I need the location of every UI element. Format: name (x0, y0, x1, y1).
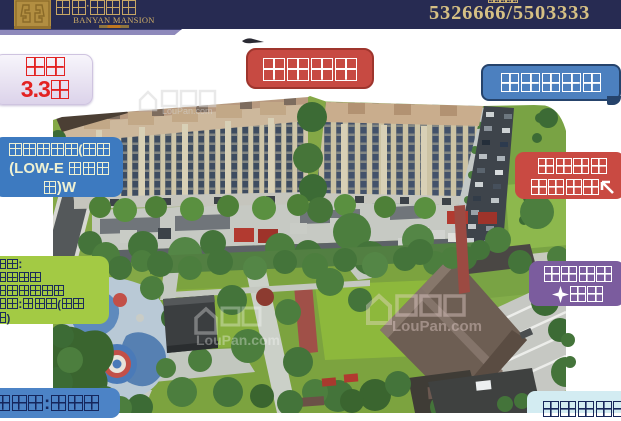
svg-text:LouPan.com: LouPan.com (196, 332, 280, 348)
svg-text:LouPan.com: LouPan.com (162, 106, 213, 116)
svg-text:LouPan.com: LouPan.com (392, 318, 482, 335)
